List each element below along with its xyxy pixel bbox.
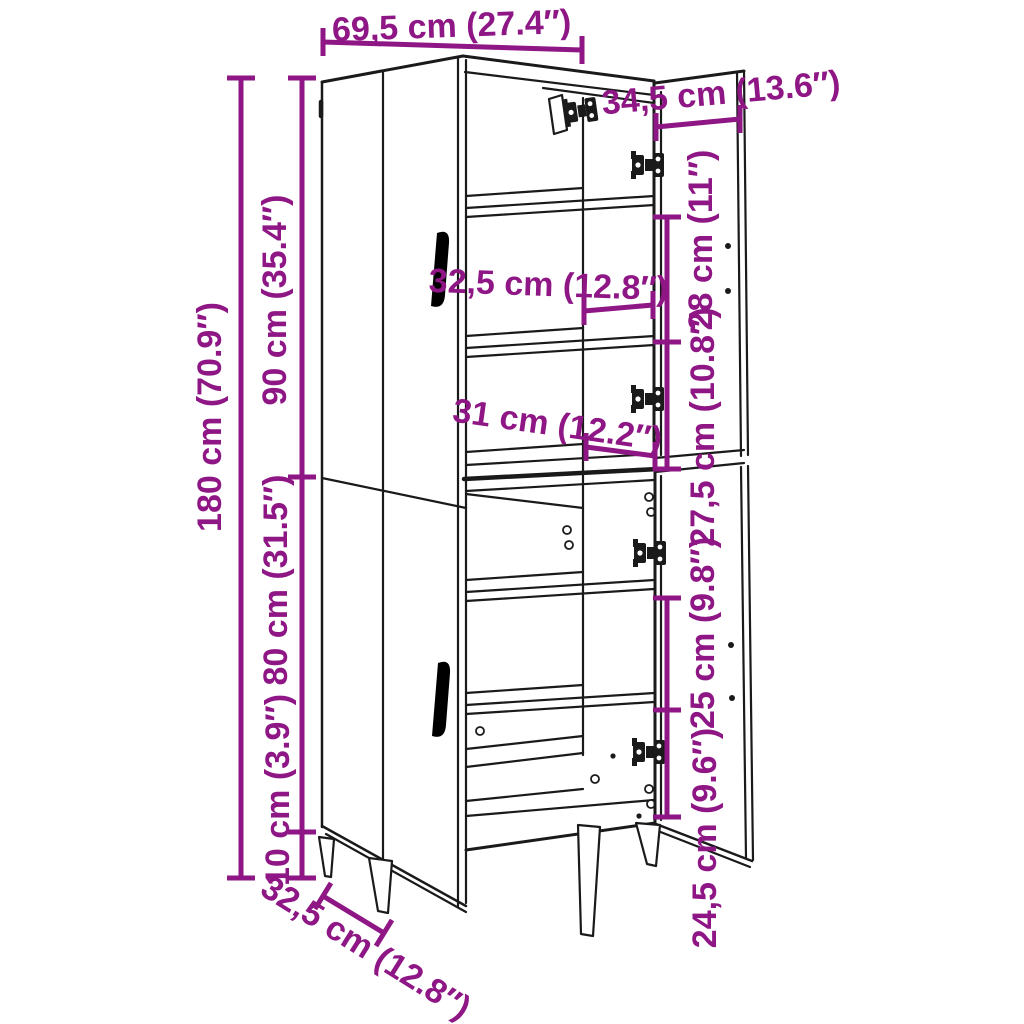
dim-label-gap-lower-1: 25 cm (9.8″) bbox=[684, 537, 722, 729]
dim-label-height-upper: 90 cm (35.4″) bbox=[256, 195, 294, 406]
dim-label-gap-lower-2: 24,5 cm (9.6″) bbox=[686, 728, 724, 948]
dim-label-gap-upper-1: 28 cm (11″) bbox=[682, 150, 720, 331]
dim-label-height-total: 180 cm (70.9″) bbox=[191, 302, 229, 532]
background bbox=[0, 0, 1024, 1024]
dim-label-gap-upper-2: 27,5 cm (10.8″) bbox=[684, 307, 722, 546]
cabinet-dimension-diagram: 69,5 cm (27.4″) 34,5 cm (13.6″) 180 cm (… bbox=[0, 0, 1024, 1024]
dim-label-height-lower: 80 cm (31.5″) bbox=[257, 475, 295, 686]
diagram-canvas: 69,5 cm (27.4″) 34,5 cm (13.6″) 180 cm (… bbox=[0, 0, 1024, 1024]
dim-label-leg-height: 10 cm (3.9″) bbox=[259, 694, 297, 886]
